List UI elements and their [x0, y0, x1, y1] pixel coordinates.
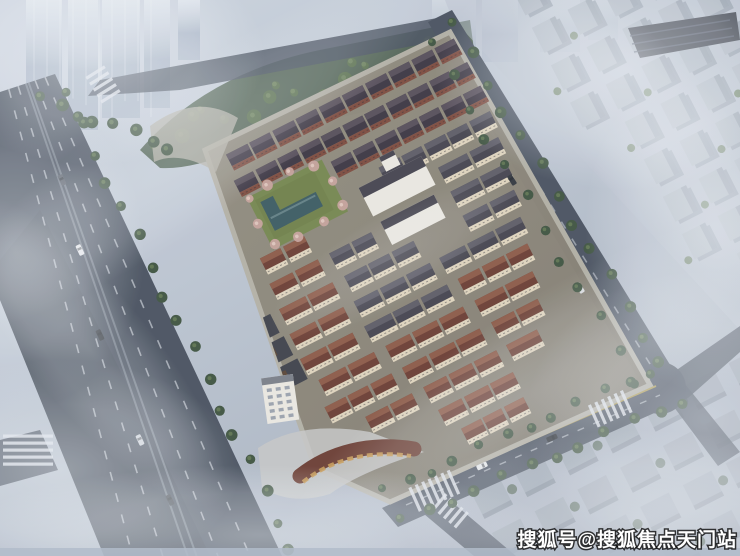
haze-veil	[0, 0, 740, 556]
watermark-text: 搜狐号@搜狐焦点天门站	[517, 528, 737, 551]
aerial-render-image: 搜狐号@搜狐焦点天门站	[0, 0, 740, 556]
screenshot-root: 搜狐号@搜狐焦点天门站	[0, 0, 740, 556]
